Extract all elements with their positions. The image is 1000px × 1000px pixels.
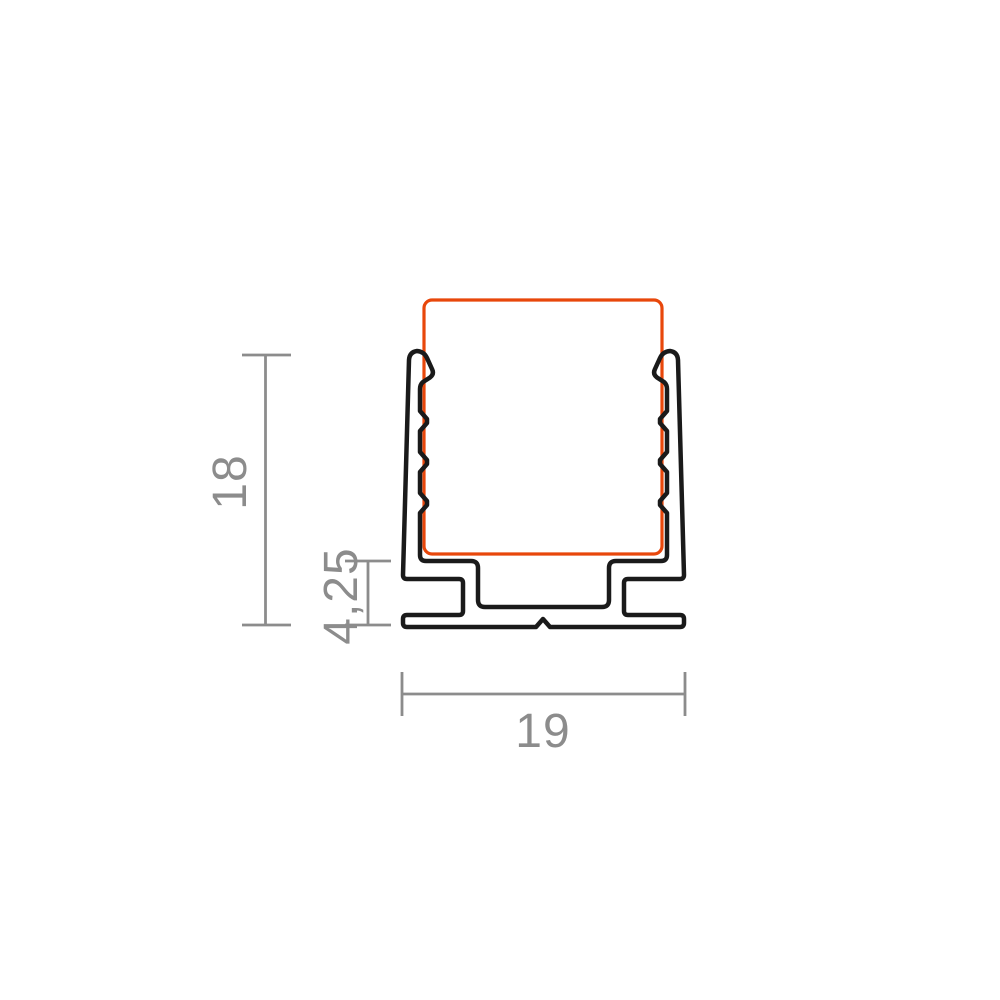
base-height-dimension-label: 4,25 [315,547,368,644]
width-dimension-label: 19 [515,705,570,758]
insert-panel-outline [424,300,662,554]
profile-outline [403,351,684,627]
drawing-canvas: 18 4,25 19 [0,0,1000,1000]
profile-drawing: 18 4,25 19 [0,0,1000,1000]
height-dimension-label: 18 [204,454,257,509]
